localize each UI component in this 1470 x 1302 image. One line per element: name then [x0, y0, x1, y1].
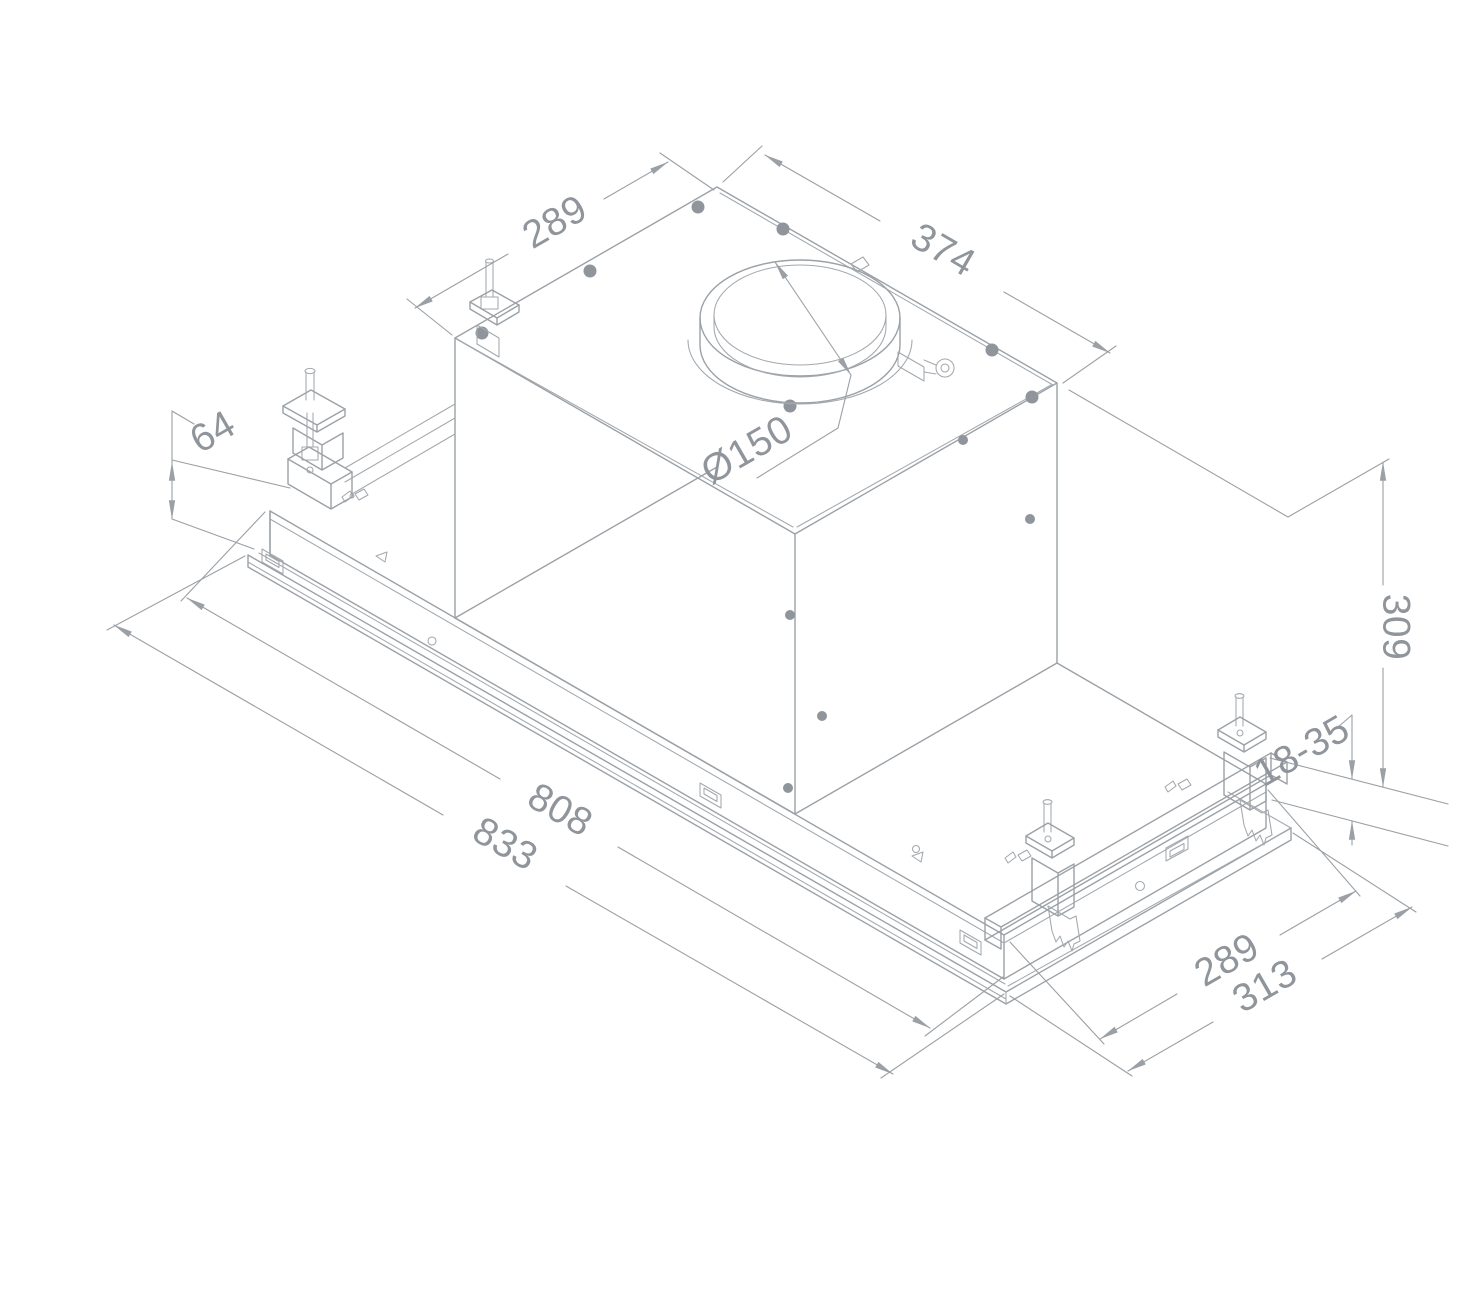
- screw-hole: [913, 846, 920, 853]
- dim-top-length: 374: [723, 146, 1116, 383]
- dim-label-overall-length: 833: [466, 809, 545, 880]
- hood-body: [262, 467, 1266, 979]
- dim-label-adjust-range: 18-35: [1247, 707, 1357, 795]
- technical-drawing: 289 374 Ø150 64 309: [0, 0, 1470, 1302]
- collar-base-flange: [688, 340, 912, 404]
- dim-label-total-height: 309: [1375, 594, 1418, 661]
- dim-label-left-height: 64: [183, 402, 243, 461]
- dim-top-depth: 289: [407, 153, 714, 335]
- dim-body-length: 808: [181, 512, 1003, 1036]
- screw-hole: [428, 637, 436, 645]
- left-rail: [345, 404, 455, 494]
- bracket-front-left: [283, 368, 352, 509]
- panel-back-edge: [1228, 792, 1291, 828]
- dim-label-top-length: 374: [904, 215, 983, 286]
- screw-dots-side: [783, 435, 1035, 793]
- dim-left-height: 64: [172, 402, 290, 549]
- drawing-canvas: 289 374 Ø150 64 309: [0, 0, 1470, 1302]
- fastener-mark: [912, 852, 923, 862]
- dim-label-duct-diameter: Ø150: [694, 407, 800, 493]
- dimension-annotations: 289 374 Ø150 64 309: [107, 146, 1448, 1078]
- dim-label-top-depth: 289: [515, 187, 594, 258]
- latch-clip: [262, 549, 1188, 955]
- bracket-back-left: [470, 259, 519, 357]
- fastener-mark: [376, 552, 387, 562]
- motor-housing: [455, 187, 1057, 814]
- toggle-clip: [342, 489, 1191, 863]
- body-top-left-edge: [455, 467, 717, 618]
- base-panel: [248, 552, 1291, 1004]
- hanger-front-right: [1026, 800, 1080, 951]
- screw-hole: [1136, 882, 1145, 891]
- dim-right-depth: 289: [1010, 790, 1360, 1044]
- body-back-edge: [1057, 663, 1266, 784]
